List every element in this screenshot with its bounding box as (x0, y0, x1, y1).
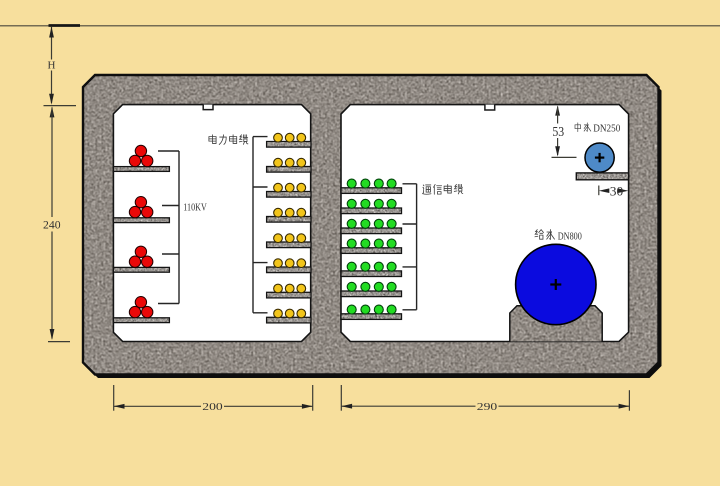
svg-text:290: 290 (477, 401, 498, 413)
svg-text:53: 53 (552, 124, 564, 139)
svg-text:DN250: DN250 (593, 123, 620, 134)
svg-text:30: 30 (610, 184, 624, 198)
svg-text:H: H (48, 60, 56, 72)
svg-text:110KV: 110KV (183, 203, 207, 214)
svg-text:DN800: DN800 (558, 231, 582, 242)
svg-text:240: 240 (43, 219, 61, 231)
svg-text:200: 200 (202, 401, 223, 413)
